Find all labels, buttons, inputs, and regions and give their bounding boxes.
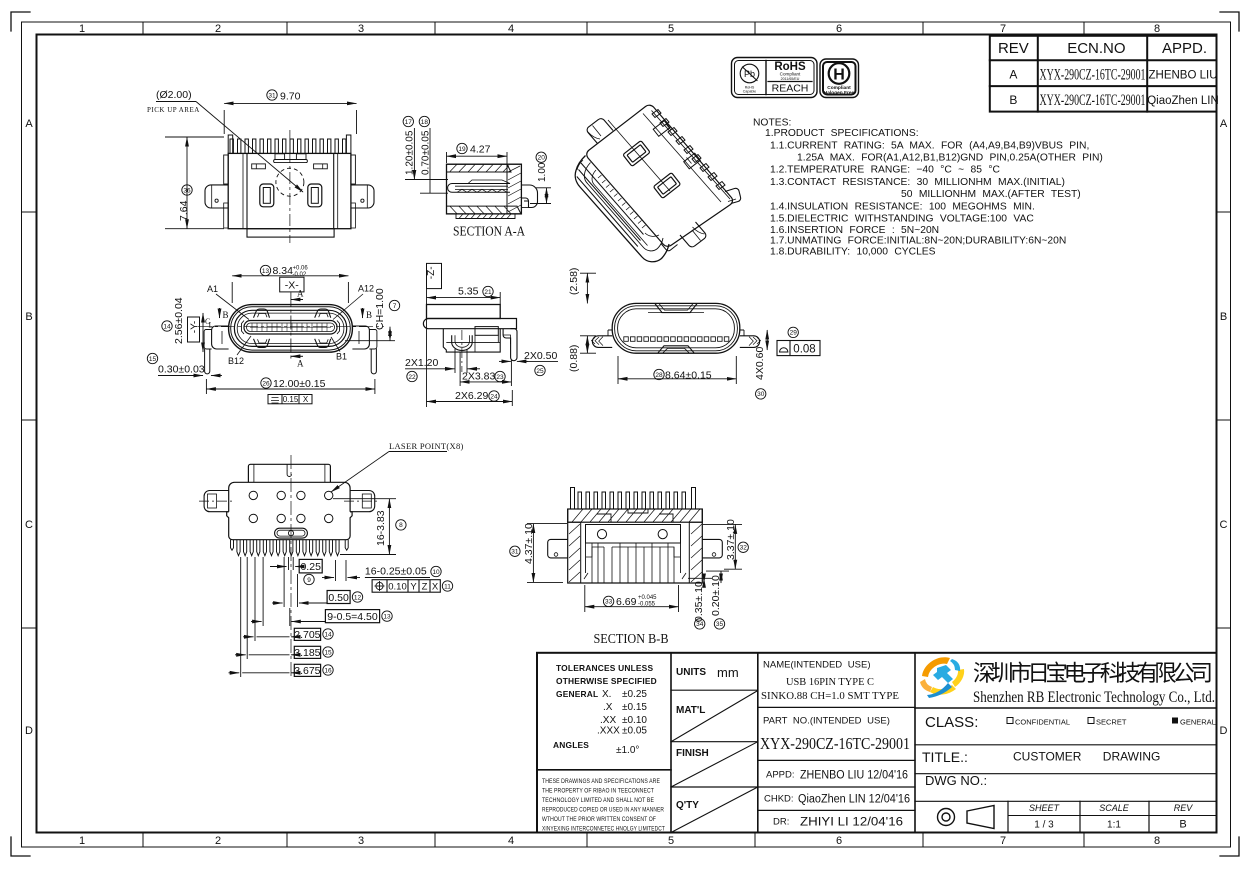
svg-text:LASER POINT(X8): LASER POINT(X8)	[389, 441, 464, 451]
svg-text:7: 7	[1000, 23, 1006, 35]
svg-text:TITLE.:: TITLE.:	[922, 749, 968, 765]
svg-text:2.705: 2.705	[294, 629, 320, 641]
svg-text:TOLERANCES UNLESS: TOLERANCES UNLESS	[556, 663, 653, 673]
svg-text:MAT'L: MAT'L	[676, 705, 705, 716]
svg-text:A: A	[25, 118, 33, 130]
svg-text:B: B	[1009, 93, 1017, 107]
svg-text:CHKD:: CHKD:	[764, 794, 794, 805]
svg-text:8.64±0.15: 8.64±0.15	[665, 369, 712, 381]
svg-text:2.56±0.04: 2.56±0.04	[173, 297, 185, 344]
svg-text:9: 9	[307, 577, 311, 584]
svg-text:1 / 3: 1 / 3	[1034, 820, 1054, 831]
svg-text:REPRODUCED COPIED OR USED IN A: REPRODUCED COPIED OR USED IN ANY MANNER	[542, 807, 664, 814]
svg-text:19: 19	[458, 146, 466, 153]
svg-text:35: 35	[716, 621, 724, 628]
svg-text:0.25: 0.25	[300, 561, 321, 573]
svg-text:4: 4	[508, 835, 514, 847]
svg-text:14: 14	[163, 323, 171, 330]
svg-text:2011/65/EU: 2011/65/EU	[781, 77, 800, 81]
svg-text:Q'TY: Q'TY	[676, 800, 699, 811]
svg-text:36: 36	[183, 187, 191, 194]
svg-text:25: 25	[536, 368, 544, 375]
svg-text:8: 8	[1154, 23, 1160, 35]
svg-text:17: 17	[405, 119, 413, 126]
svg-text:22: 22	[408, 374, 416, 381]
svg-text:Pb: Pb	[744, 69, 755, 79]
svg-text:SCALE: SCALE	[1099, 803, 1130, 813]
svg-text:REV: REV	[998, 40, 1029, 57]
svg-text:Y: Y	[410, 582, 417, 593]
svg-text:ZHENBO LIU 12/04'16: ZHENBO LIU 12/04'16	[800, 770, 908, 782]
svg-text:A1: A1	[207, 284, 218, 294]
svg-text:WTHOUT THE PRIOR WRITTEN CONS: WTHOUT THE PRIOR WRITTEN CONSENT OF	[542, 816, 656, 823]
svg-text:1.1.CURRENT RATING: 5A MAX.: 1.1.CURRENT RATING: 5A MAX. FOR (A4,A9,B…	[770, 140, 1089, 151]
svg-text:.X: .X	[603, 702, 613, 713]
svg-text:A: A	[1009, 68, 1017, 82]
svg-text:3.185: 3.185	[294, 647, 320, 659]
svg-text:SECTION A-A: SECTION A-A	[453, 224, 525, 239]
svg-text:29: 29	[790, 330, 798, 337]
svg-text:A: A	[297, 359, 304, 369]
svg-text:ANGLES: ANGLES	[553, 740, 589, 750]
svg-text:±0.05: ±0.05	[622, 726, 647, 737]
svg-text:5: 5	[668, 23, 674, 35]
svg-text:A: A	[297, 289, 304, 299]
svg-text:REV: REV	[1174, 803, 1194, 813]
svg-text:4: 4	[508, 23, 514, 35]
svg-text:Z: Z	[422, 582, 428, 593]
svg-text:0.15: 0.15	[283, 395, 299, 404]
svg-text:ECN.NO: ECN.NO	[1067, 40, 1125, 57]
svg-text:7: 7	[1000, 835, 1006, 847]
svg-text:10: 10	[432, 569, 440, 576]
svg-text:C: C	[25, 519, 33, 531]
svg-text:GENERAL: GENERAL	[556, 689, 598, 699]
svg-text:XYX-290CZ-16TC-29001: XYX-290CZ-16TC-29001	[1040, 67, 1146, 84]
svg-text:2: 2	[215, 23, 221, 35]
svg-text:0.50: 0.50	[328, 592, 349, 604]
svg-text:1.20±0.05: 1.20±0.05	[405, 130, 416, 175]
svg-text:D: D	[1220, 725, 1228, 737]
svg-text:2X3.83: 2X3.83	[462, 371, 495, 383]
svg-text:8.34: 8.34	[273, 265, 294, 277]
svg-text:13: 13	[383, 613, 391, 620]
svg-text:±0.15: ±0.15	[622, 702, 647, 713]
svg-text:APPD:: APPD:	[766, 770, 795, 781]
svg-text:Capable: Capable	[743, 90, 756, 94]
svg-text:OTHERWISE SPECIFIED: OTHERWISE SPECIFIED	[556, 676, 657, 686]
svg-text:23: 23	[496, 374, 504, 381]
svg-text:1.7.UNMATING FORCE:INITIAL:8N: 1.7.UNMATING FORCE:INITIAL:8N~20N;DURABI…	[770, 236, 1066, 247]
svg-text:1: 1	[79, 835, 85, 847]
svg-text:ZHIYI LI 12/04'16: ZHIYI LI 12/04'16	[800, 817, 903, 829]
svg-text:6.69: 6.69	[616, 596, 637, 608]
svg-text:B12: B12	[228, 356, 244, 366]
svg-text:THE PROPERTY OF RIBAO IN TEECO: THE PROPERTY OF RIBAO IN TEECONNECT	[542, 788, 654, 795]
svg-text:12: 12	[354, 594, 362, 601]
svg-text:4X0.60: 4X0.60	[754, 347, 766, 380]
svg-text:2: 2	[215, 835, 221, 847]
svg-text:1.4.INSULATION RESISTANCE: 1: 1.4.INSULATION RESISTANCE: 100 MEGOHMS M…	[770, 201, 1035, 212]
svg-text:TECHNOLOGY LIMITED AND SHALL N: TECHNOLOGY LIMITED AND SHALL NOT BE	[542, 797, 654, 804]
svg-text:6: 6	[836, 23, 842, 35]
svg-text:1.5.DIELECTRIC WITHSTANDING: 1.5.DIELECTRIC WITHSTANDING VOLTAGE:100 …	[770, 214, 1034, 225]
svg-text:A: A	[1220, 118, 1228, 130]
svg-text:B1: B1	[336, 352, 347, 362]
svg-text:26: 26	[262, 380, 270, 387]
svg-text:33: 33	[605, 599, 613, 606]
svg-text:mm: mm	[717, 665, 739, 680]
svg-text:15: 15	[149, 356, 157, 363]
svg-text:20: 20	[538, 155, 546, 162]
svg-text:5.35: 5.35	[458, 286, 479, 298]
svg-text:SINKO.88 CH=1.0 SMT TYPE: SINKO.88 CH=1.0 SMT TYPE	[761, 690, 899, 702]
svg-text:3: 3	[358, 23, 364, 35]
svg-text:5: 5	[668, 835, 674, 847]
svg-text:6: 6	[836, 835, 842, 847]
svg-text:QiaoZhen LIN: QiaoZhen LIN	[1147, 95, 1219, 107]
svg-text:21: 21	[484, 289, 492, 296]
svg-text:16-3.83: 16-3.83	[375, 510, 387, 546]
svg-text:QiaoZhen LIN 12/04'16: QiaoZhen LIN 12/04'16	[798, 794, 910, 806]
svg-text:0.20±.10: 0.20±.10	[710, 575, 722, 616]
svg-text:.XX: .XX	[600, 715, 616, 726]
svg-text:-Y-: -Y-	[190, 321, 201, 333]
svg-text:SECRET: SECRET	[1096, 718, 1127, 727]
svg-text:Shenzhen RB Electronic Technol: Shenzhen RB Electronic Technology Co., L…	[973, 689, 1215, 706]
svg-text:L: L	[209, 321, 214, 330]
svg-text:SHEET: SHEET	[1029, 803, 1061, 813]
svg-text:XYX-290CZ-16TC-29001: XYX-290CZ-16TC-29001	[760, 734, 910, 753]
svg-text:XINYEXING INTERCONNETEC HNOLGY: XINYEXING INTERCONNETEC HNOLGY LIMITEDCT	[542, 826, 665, 833]
svg-text:1.25A MAX. FOR(A1,A12,B1,B12: 1.25A MAX. FOR(A1,A12,B1,B12)GND PIN,0.2…	[797, 153, 1103, 164]
svg-text:B: B	[1179, 819, 1186, 831]
svg-text:H: H	[833, 67, 845, 84]
svg-text:NAME(INTENDED USE): NAME(INTENDED USE)	[763, 660, 871, 671]
svg-text:2X6.29: 2X6.29	[455, 390, 488, 402]
svg-text:ZHENBO LIU: ZHENBO LIU	[1148, 70, 1217, 82]
svg-text:DR:: DR:	[773, 817, 789, 828]
svg-text:15: 15	[324, 649, 332, 656]
svg-text:CLASS:: CLASS:	[925, 714, 978, 731]
svg-text:B: B	[25, 311, 32, 323]
svg-text:13: 13	[262, 268, 270, 275]
svg-text:14: 14	[324, 631, 332, 638]
svg-text:THESE DRAWINGS AND SPECIFICATI: THESE DRAWINGS AND SPECIFICATIONS ARE	[542, 778, 660, 785]
svg-text:50 MILLIONHM MAX.(AFTER TES: 50 MILLIONHM MAX.(AFTER TEST)	[901, 189, 1081, 200]
svg-text:X.: X.	[602, 689, 611, 700]
svg-text:CH=1.00: CH=1.00	[374, 288, 386, 330]
svg-text:24: 24	[490, 393, 498, 400]
svg-text:PICK UP AREA: PICK UP AREA	[147, 106, 200, 114]
svg-text:1.6.INSERTION FORCE : 5N~20: 1.6.INSERTION FORCE : 5N~20N	[770, 225, 939, 236]
svg-text:A12: A12	[358, 284, 374, 294]
svg-text:±0.25: ±0.25	[622, 689, 647, 700]
svg-text:X: X	[432, 582, 439, 593]
svg-text:3: 3	[358, 835, 364, 847]
svg-text:C: C	[1220, 519, 1228, 531]
svg-text:(Ø2.00): (Ø2.00)	[156, 89, 192, 101]
svg-text:±0.10: ±0.10	[622, 715, 647, 726]
svg-text:XYX-290CZ-16TC-29001: XYX-290CZ-16TC-29001	[1040, 92, 1146, 109]
svg-text:NOTES:: NOTES:	[753, 118, 791, 129]
svg-text:(2.58): (2.58)	[568, 268, 580, 295]
svg-text:32: 32	[740, 545, 748, 552]
svg-text:FINISH: FINISH	[676, 748, 709, 759]
svg-text:0.08: 0.08	[793, 344, 815, 356]
svg-text:(0.88): (0.88)	[568, 345, 580, 372]
svg-text:深圳市日宝电子科技有限公司: 深圳市日宝电子科技有限公司	[973, 661, 1213, 686]
svg-text:GENERAL: GENERAL	[1180, 718, 1216, 727]
svg-text:31: 31	[268, 92, 276, 99]
svg-text:1.00: 1.00	[537, 162, 548, 182]
svg-text:B: B	[1220, 311, 1227, 323]
svg-text:0.10: 0.10	[388, 582, 407, 593]
svg-text:CONFIDENTIAL: CONFIDENTIAL	[1015, 718, 1070, 727]
svg-text:0.30±0.03: 0.30±0.03	[158, 364, 205, 376]
svg-text:+0.045: +0.045	[638, 595, 657, 601]
svg-text:0.35±.10: 0.35±.10	[693, 581, 705, 622]
svg-text:30: 30	[757, 391, 765, 398]
svg-text:1:1: 1:1	[1107, 820, 1121, 831]
svg-text:SECTION B-B: SECTION B-B	[594, 631, 669, 646]
svg-text:4.27: 4.27	[470, 144, 491, 156]
svg-text:1.2.TEMPERATURE RANGE: −40: 1.2.TEMPERATURE RANGE: −40 °C ~ 85 °C	[770, 165, 1000, 176]
svg-text:8: 8	[399, 522, 403, 529]
svg-text:Halogen Free: Halogen Free	[824, 90, 855, 96]
svg-text:16: 16	[324, 667, 332, 674]
svg-text:USB 16PIN TYPE C: USB 16PIN TYPE C	[786, 676, 874, 688]
svg-text:PART NO.(INTENDED USE): PART NO.(INTENDED USE)	[763, 716, 890, 727]
svg-text:11: 11	[444, 583, 451, 590]
svg-text:1.PRODUCT SPECIFICATIONS:: 1.PRODUCT SPECIFICATIONS:	[765, 128, 919, 139]
svg-text:UNITS: UNITS	[676, 667, 706, 678]
svg-text:18: 18	[421, 119, 429, 126]
svg-text:8: 8	[1154, 835, 1160, 847]
svg-text:.XXX: .XXX	[597, 726, 620, 737]
svg-text:12.00±0.15: 12.00±0.15	[273, 378, 326, 390]
svg-text:7.64: 7.64	[178, 200, 190, 221]
svg-text:2X0.50: 2X0.50	[524, 350, 557, 362]
svg-text:X: X	[303, 395, 309, 404]
svg-text:-Z-: -Z-	[426, 266, 437, 279]
svg-text:B: B	[366, 310, 372, 320]
svg-text:1: 1	[79, 23, 85, 35]
svg-text:9.70: 9.70	[280, 91, 301, 103]
svg-text:1.8.DURABILITY: 10,000 CYC: 1.8.DURABILITY: 10,000 CYCLES	[770, 246, 936, 257]
svg-text:7: 7	[393, 303, 397, 310]
svg-text:9-0.5=4.50: 9-0.5=4.50	[327, 611, 378, 623]
svg-text:34: 34	[696, 621, 704, 628]
svg-text:16-0.25±0.05: 16-0.25±0.05	[365, 566, 427, 578]
svg-text:CUSTOMER DRAWING: CUSTOMER DRAWING	[1013, 750, 1160, 764]
svg-text:APPD.: APPD.	[1162, 40, 1207, 57]
svg-text:+0.06: +0.06	[293, 266, 309, 272]
svg-text:B: B	[223, 310, 229, 320]
svg-text:REACH: REACH	[772, 83, 809, 95]
svg-text:31: 31	[511, 549, 519, 556]
svg-text:D: D	[25, 725, 33, 737]
svg-text:28: 28	[655, 372, 663, 379]
svg-text:±1.0°: ±1.0°	[616, 745, 639, 756]
svg-text:3.675: 3.675	[294, 665, 320, 677]
svg-text:Compliant: Compliant	[780, 72, 801, 77]
svg-text:DWG NO.:: DWG NO.:	[925, 773, 987, 788]
svg-text:2X1.20: 2X1.20	[405, 357, 438, 369]
svg-text:1.3.CONTACT RESISTANCE: 30: 1.3.CONTACT RESISTANCE: 30 MILLIONHM MAX…	[770, 177, 1065, 188]
